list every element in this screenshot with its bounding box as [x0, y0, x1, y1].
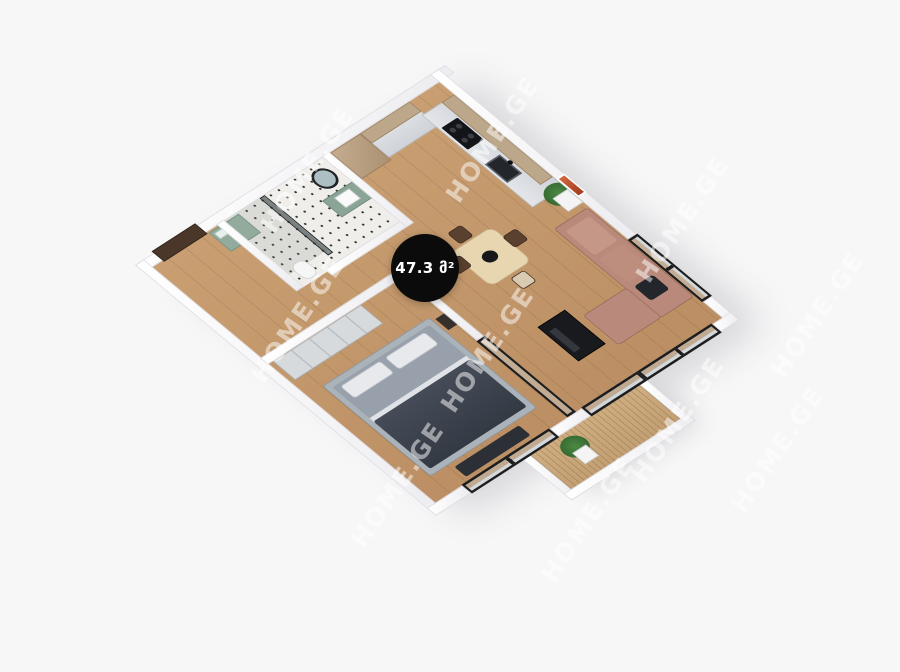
- area-badge: 47.3 მ²: [391, 234, 459, 302]
- apartment-3d-plan: [135, 65, 808, 568]
- floor-plan-render: 47.3 მ² HOME.GEHOME.GEHOME.GEHOME.GEHOME…: [0, 0, 900, 672]
- area-badge-text: 47.3 მ²: [395, 259, 454, 277]
